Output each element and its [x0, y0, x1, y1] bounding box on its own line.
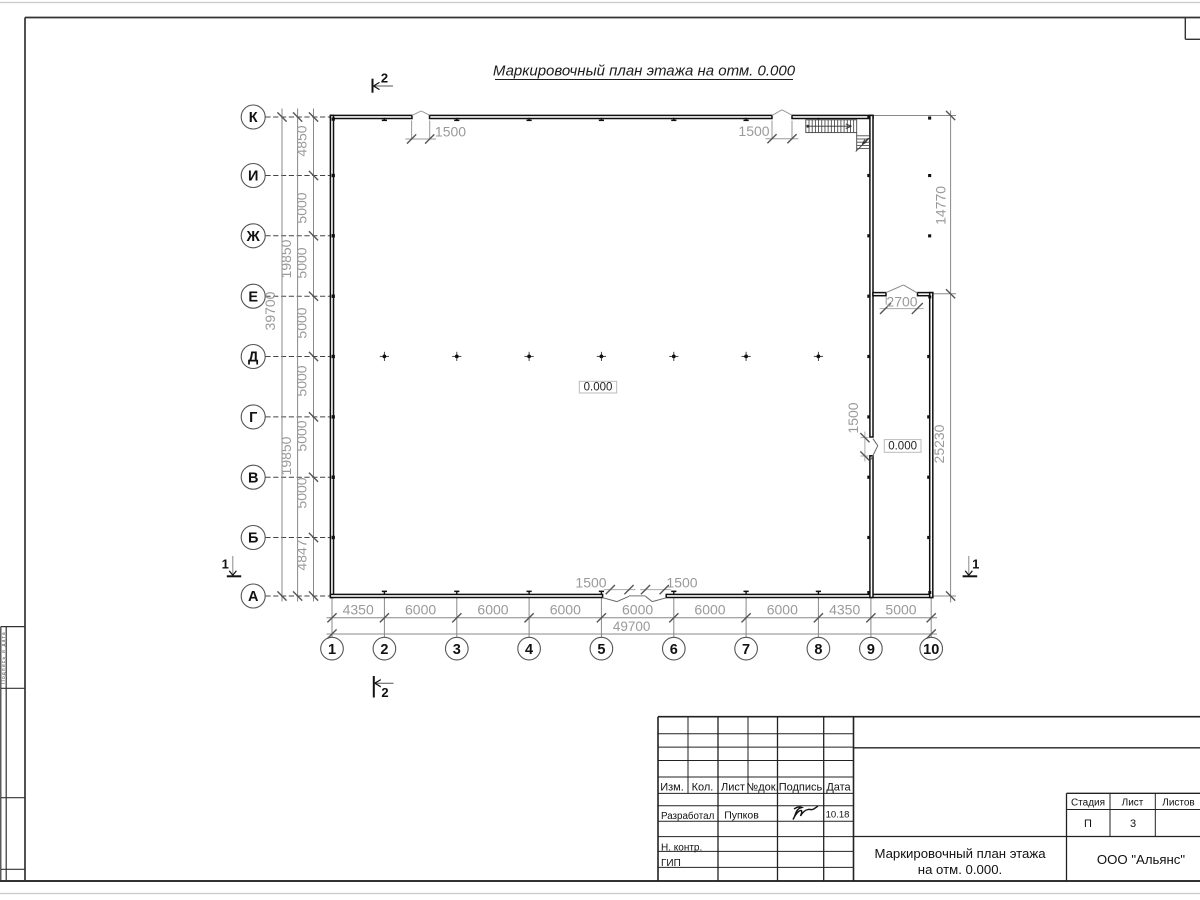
svg-text:4847: 4847 [294, 539, 310, 570]
svg-text:Листов: Листов [1162, 797, 1195, 808]
svg-text:1500: 1500 [575, 575, 606, 591]
svg-text:2700: 2700 [886, 294, 917, 310]
svg-text:К: К [249, 110, 258, 126]
svg-text:Д: Д [248, 350, 259, 366]
svg-text:Лист: Лист [721, 781, 745, 793]
svg-text:5: 5 [597, 642, 605, 658]
svg-text:А: А [248, 589, 259, 605]
svg-text:5000: 5000 [294, 307, 310, 338]
svg-text:2: 2 [380, 642, 388, 658]
svg-text:4: 4 [525, 642, 533, 658]
svg-text:на отм. 0.000.: на отм. 0.000. [918, 862, 1002, 877]
svg-text:19850: 19850 [278, 239, 294, 278]
svg-text:5000: 5000 [294, 247, 310, 278]
svg-text:1: 1 [222, 557, 229, 572]
svg-text:0.000: 0.000 [584, 382, 613, 394]
svg-text:19850: 19850 [278, 436, 294, 475]
svg-text:Лист: Лист [1122, 797, 1144, 808]
svg-text:9: 9 [867, 642, 875, 658]
svg-text:1: 1 [328, 642, 336, 658]
svg-text:В: В [248, 470, 258, 486]
svg-text:№док.: №док. [746, 781, 778, 793]
svg-text:0.000: 0.000 [888, 441, 917, 453]
svg-text:2: 2 [381, 70, 388, 85]
svg-text:14770: 14770 [932, 186, 948, 225]
svg-text:Разработал: Разработал [661, 811, 715, 822]
svg-text:39700: 39700 [262, 291, 278, 330]
svg-text:Изм.: Изм. [660, 781, 684, 793]
svg-text:ООО "Альянс": ООО "Альянс" [1097, 852, 1185, 867]
svg-text:6000: 6000 [477, 602, 508, 618]
svg-text:Н. контр.: Н. контр. [661, 843, 702, 854]
svg-text:7: 7 [742, 642, 750, 658]
svg-text:6000: 6000 [405, 602, 436, 618]
svg-text:49700: 49700 [613, 619, 651, 634]
svg-text:6000: 6000 [622, 602, 653, 618]
svg-text:Маркировочный план этажа: Маркировочный план этажа [874, 846, 1046, 861]
svg-text:3: 3 [1130, 818, 1136, 830]
svg-text:5000: 5000 [294, 420, 310, 451]
svg-text:1500: 1500 [666, 575, 697, 591]
svg-text:5000: 5000 [294, 192, 310, 223]
svg-text:ГИП: ГИП [661, 858, 681, 869]
svg-text:И: И [248, 169, 258, 185]
svg-text:Г: Г [249, 410, 257, 426]
svg-text:1: 1 [972, 557, 979, 572]
svg-text:Подпись: Подпись [779, 781, 823, 793]
svg-text:Е: Е [248, 289, 258, 305]
svg-text:4850: 4850 [294, 125, 310, 156]
svg-text:2: 2 [381, 685, 388, 700]
svg-text:10: 10 [923, 642, 939, 658]
svg-text:6: 6 [670, 642, 678, 658]
svg-text:6000: 6000 [767, 602, 798, 618]
svg-text:Дата: Дата [826, 781, 851, 793]
svg-text:1500: 1500 [435, 123, 466, 139]
svg-text:10.18: 10.18 [826, 810, 850, 821]
svg-text:Ж: Ж [246, 229, 261, 245]
svg-text:5000: 5000 [294, 477, 310, 508]
svg-text:6000: 6000 [550, 602, 581, 618]
svg-text:Подпись и дата: Подпись и дата [1, 631, 7, 684]
svg-text:Б: Б [248, 531, 258, 547]
svg-text:6000: 6000 [694, 602, 725, 618]
svg-text:8: 8 [814, 642, 822, 658]
svg-text:1500: 1500 [738, 123, 769, 139]
svg-text:4350: 4350 [343, 602, 374, 618]
svg-text:Кол.: Кол. [692, 781, 714, 793]
svg-text:5000: 5000 [294, 365, 310, 396]
svg-text:1500: 1500 [845, 402, 861, 433]
svg-text:П: П [1084, 818, 1092, 830]
svg-text:Стадия: Стадия [1071, 797, 1105, 808]
svg-text:Маркировочный план этажа на от: Маркировочный план этажа на отм. 0.000 [493, 63, 796, 80]
svg-text:3: 3 [453, 642, 461, 658]
svg-text:5000: 5000 [885, 602, 916, 618]
svg-text:Пупков: Пупков [724, 810, 759, 822]
svg-text:4350: 4350 [829, 602, 860, 618]
